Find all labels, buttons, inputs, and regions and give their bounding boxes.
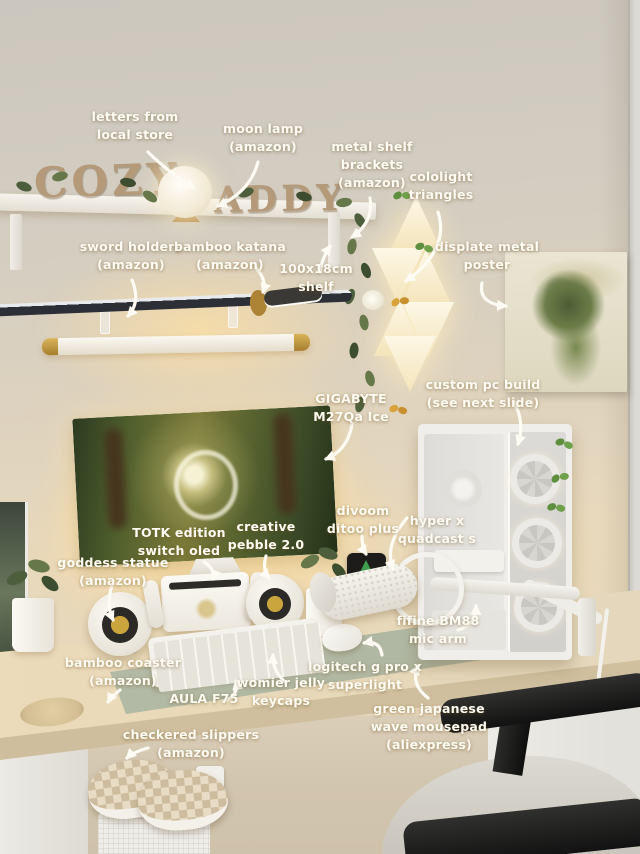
saya-cap <box>294 334 310 351</box>
annotation-bamboo-katana: bamboo katana (amazon) <box>174 238 286 274</box>
screen-tree <box>274 413 297 514</box>
annotation-metal-shelf-brackets: metal shelf brackets (amazon) <box>331 138 412 191</box>
screen-tree <box>104 428 127 529</box>
butterfly <box>547 501 565 515</box>
annotation-moon-lamp: moon lamp (amazon) <box>223 120 303 156</box>
aio-pump <box>444 470 482 508</box>
annotation-hyperx-quadcast-s: hyper x quadcast s <box>398 512 476 548</box>
annotation-bamboo-coaster: bamboo coaster (amazon) <box>65 654 181 690</box>
annotation-checkered-slippers: checkered slippers (amazon) <box>123 726 259 762</box>
screen-glow-ring <box>172 449 240 522</box>
annotation-green-japanese-wave-mousepad: green japanese wave mousepad (aliexpress… <box>371 700 487 753</box>
annotation-fifine-bm88-mic-arm: fifine BM88 mic arm <box>397 612 480 648</box>
white-rose <box>362 290 384 310</box>
annotation-monitor-model: GIGABYTE M27Qa Ice <box>313 390 389 426</box>
desk-setup-photo: COZY ADDY <box>0 0 640 854</box>
pc-fan <box>512 518 562 568</box>
butterfly <box>394 190 410 202</box>
mic-arm-clamp <box>578 598 596 656</box>
annotation-goddess-statue: goddess statue (amazon) <box>57 554 168 590</box>
zelda-emblem <box>194 597 219 620</box>
shelf-bracket-left <box>10 214 22 270</box>
annotation-creative-pebble: creative pebble 2.0 <box>228 518 305 554</box>
dock-slot <box>169 579 241 590</box>
annotation-logitech-g-pro-x-superlight: logitech g pro x superlight <box>308 658 422 694</box>
annotation-cololight-triangles: cololight triangles <box>409 168 474 204</box>
annotation-custom-pc-build: custom pc build (see next slide) <box>426 376 541 412</box>
annotation-letters-from-local-store: letters from local store <box>92 108 179 144</box>
speaker-driver <box>102 607 138 643</box>
speaker-driver <box>259 588 291 620</box>
speaker-left <box>88 592 152 656</box>
decorative-letters-addy: ADDY <box>214 177 347 221</box>
annotation-shelf-size: 100x18cm shelf <box>279 260 353 296</box>
annotation-displate-metal-poster: displate metal poster <box>435 238 539 274</box>
annotation-sword-holders: sword holders (amazon) <box>80 238 182 274</box>
annotation-divoom-ditoo-plus: divoom ditoo plus <box>327 502 399 538</box>
switch-dock <box>161 572 252 633</box>
plant-pot-left <box>12 598 54 652</box>
saya-cap <box>42 338 58 355</box>
moon-lamp <box>158 166 212 218</box>
cololight-panels <box>372 196 462 392</box>
annotation-aula-f75: AULA F75 <box>170 690 239 708</box>
